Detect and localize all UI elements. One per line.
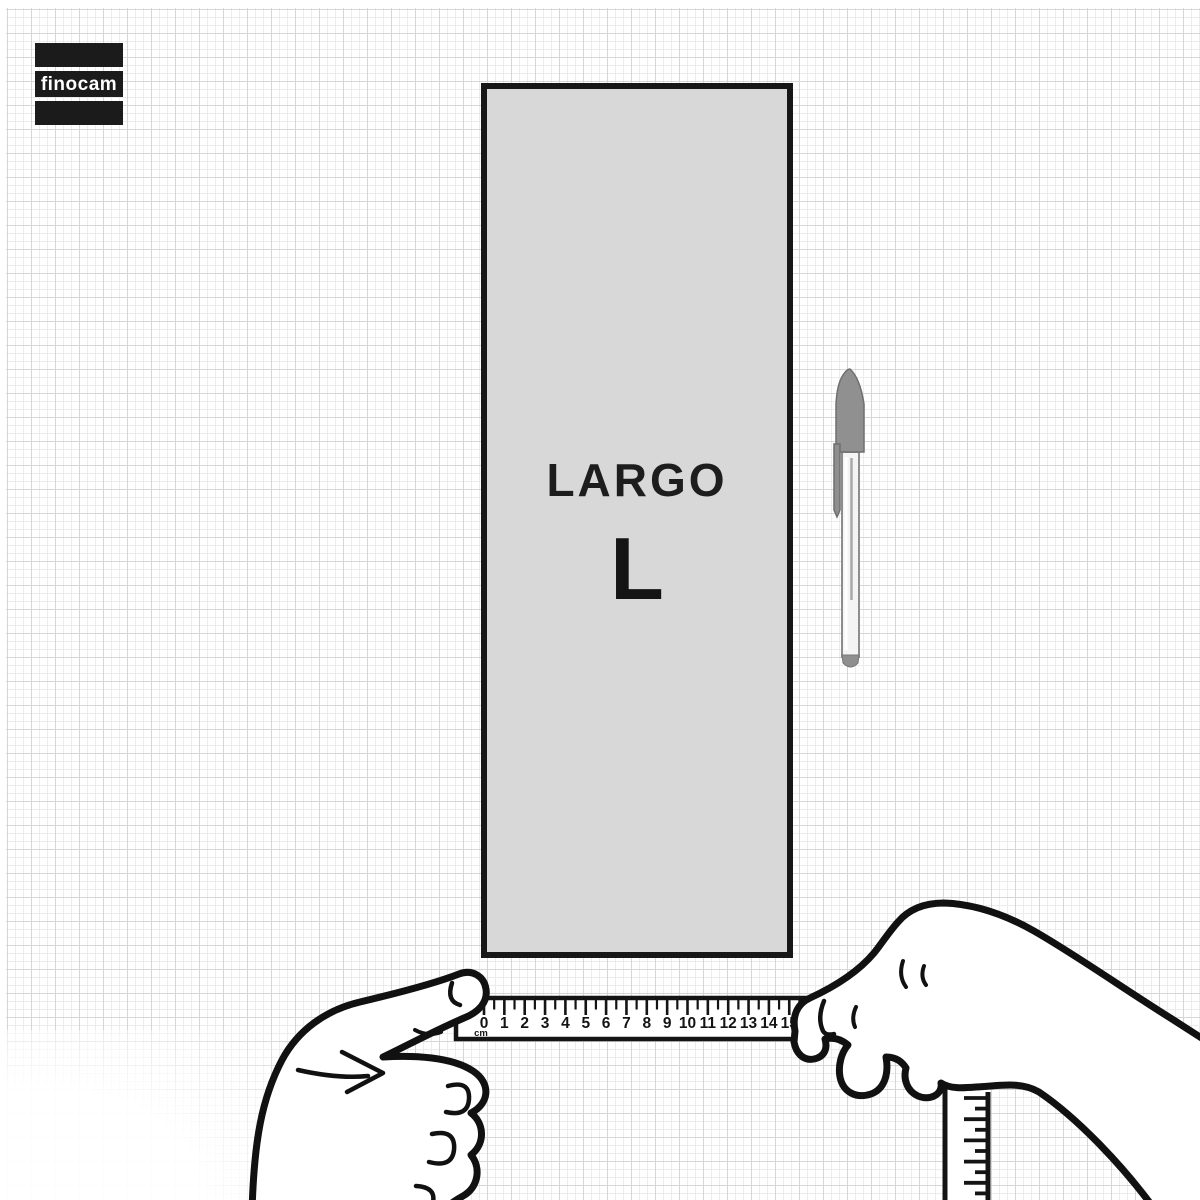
svg-text:4: 4 — [561, 1015, 570, 1032]
svg-text:7: 7 — [622, 1015, 631, 1032]
ruler-unit-label: cm — [474, 1028, 488, 1039]
svg-text:13: 13 — [740, 1015, 758, 1032]
svg-text:5: 5 — [581, 1015, 590, 1032]
left-hand-holding-tape — [252, 972, 486, 1200]
svg-text:6: 6 — [602, 1015, 611, 1032]
tape-measure-horizontal: 0123456789101112131415 cm — [456, 998, 832, 1039]
pen-cap — [836, 369, 864, 452]
svg-text:3: 3 — [541, 1015, 550, 1032]
svg-text:14: 14 — [760, 1015, 778, 1032]
svg-text:8: 8 — [642, 1015, 651, 1032]
tape-measure-tail — [943, 1082, 990, 1200]
illustration-scene: 0123456789101112131415 cm — [0, 0, 1200, 1200]
svg-text:10: 10 — [679, 1015, 696, 1032]
ballpoint-pen-icon — [834, 369, 864, 667]
right-hand-holding-tape — [794, 903, 1200, 1200]
svg-text:12: 12 — [720, 1015, 737, 1032]
svg-text:9: 9 — [663, 1015, 672, 1032]
svg-text:11: 11 — [700, 1015, 717, 1032]
svg-text:2: 2 — [520, 1015, 529, 1032]
measurement-diagram: finocam LARGO L 0123456789101112131415 c… — [0, 0, 1200, 1200]
svg-text:1: 1 — [500, 1015, 509, 1032]
pen-clip — [834, 444, 840, 517]
